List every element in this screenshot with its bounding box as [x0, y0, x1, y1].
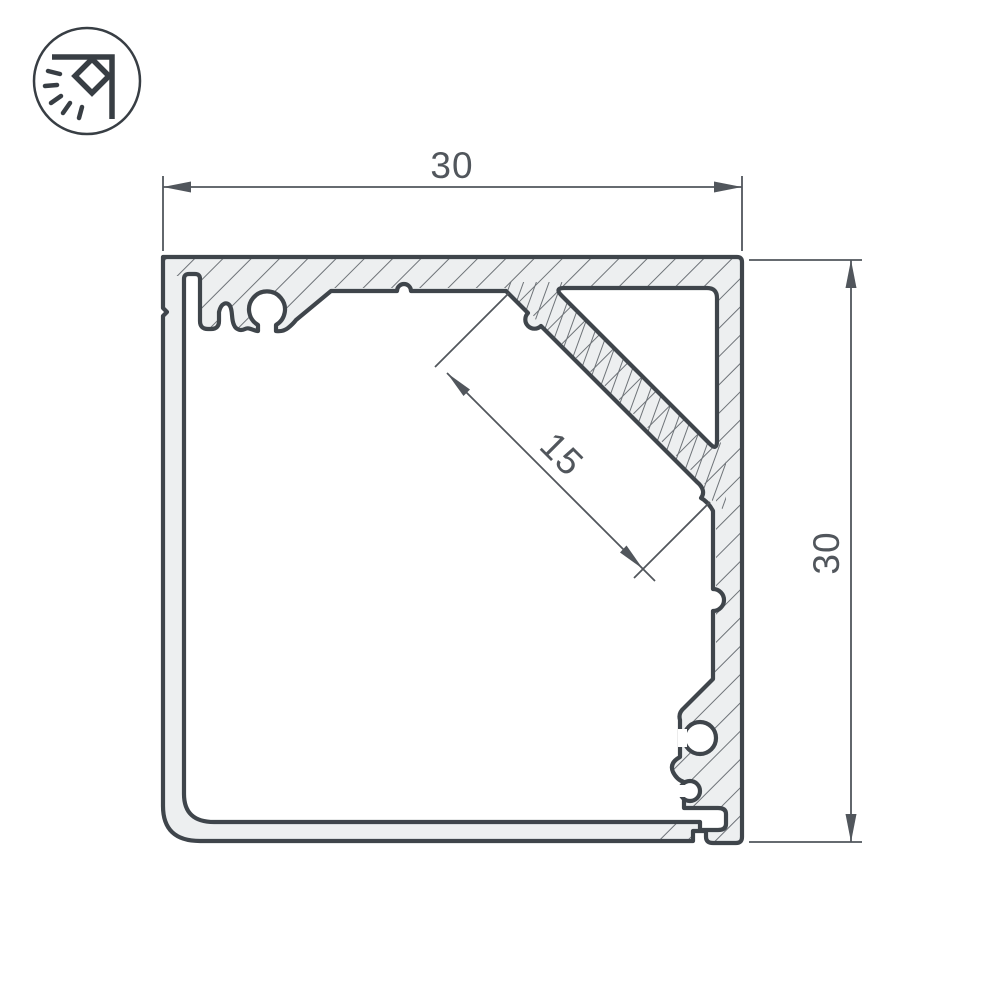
arrowhead-left-icon — [163, 182, 191, 193]
screw-channel-opening — [678, 729, 687, 747]
dimension-led-face-label: 15 — [532, 424, 592, 484]
wall-section-hatch — [160, 250, 745, 850]
profile-drawing-svg: 30 30 15 — [0, 0, 1000, 1000]
brand-logo — [34, 28, 140, 134]
technical-drawing-canvas: 30 30 15 — [0, 0, 1000, 1000]
dimension-width-label: 30 — [430, 145, 473, 186]
arrowhead-upleft-icon — [447, 373, 470, 396]
arrowhead-up-icon — [846, 260, 857, 288]
profile-metal-fill — [163, 257, 742, 843]
lamp-diamond — [75, 59, 109, 93]
clip-groove-opening — [676, 785, 685, 797]
dimension-height-label: 30 — [806, 531, 847, 574]
dimension-width-top — [163, 176, 742, 251]
arrowhead-down-icon — [846, 814, 857, 842]
profile-outline — [163, 257, 742, 843]
arrowhead-right-icon — [714, 182, 742, 193]
extension-line — [634, 502, 710, 578]
arrowhead-downright-icon — [620, 546, 643, 570]
screw-channel — [684, 722, 716, 754]
extension-line — [435, 293, 509, 367]
profile-cross-section — [160, 250, 745, 850]
